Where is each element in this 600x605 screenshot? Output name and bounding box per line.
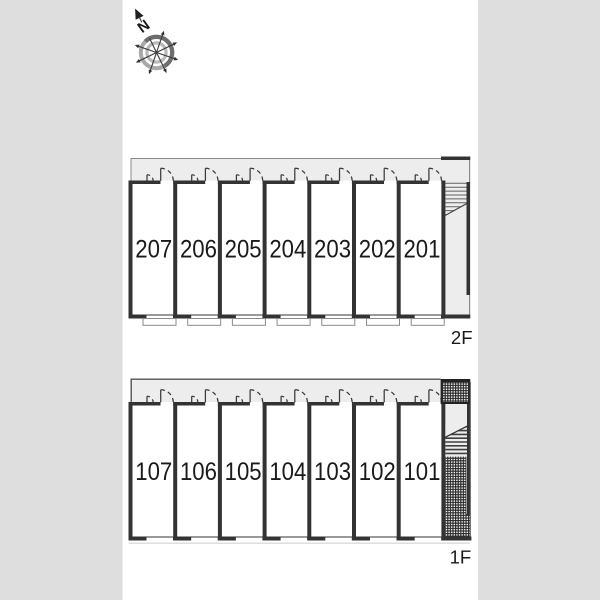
- svg-text:105: 105: [225, 458, 262, 486]
- svg-text:103: 103: [314, 458, 351, 486]
- svg-text:201: 201: [403, 236, 440, 264]
- svg-text:107: 107: [135, 458, 172, 486]
- svg-text:207: 207: [135, 236, 172, 264]
- svg-text:202: 202: [359, 236, 396, 264]
- svg-text:206: 206: [180, 236, 217, 264]
- svg-text:106: 106: [180, 458, 217, 486]
- svg-text:204: 204: [269, 236, 306, 264]
- svg-text:101: 101: [403, 458, 440, 486]
- svg-text:203: 203: [314, 236, 351, 264]
- svg-text:205: 205: [225, 236, 262, 264]
- svg-text:1F: 1F: [450, 547, 472, 568]
- svg-text:2F: 2F: [451, 327, 473, 348]
- svg-text:104: 104: [269, 458, 306, 486]
- svg-text:102: 102: [359, 458, 396, 486]
